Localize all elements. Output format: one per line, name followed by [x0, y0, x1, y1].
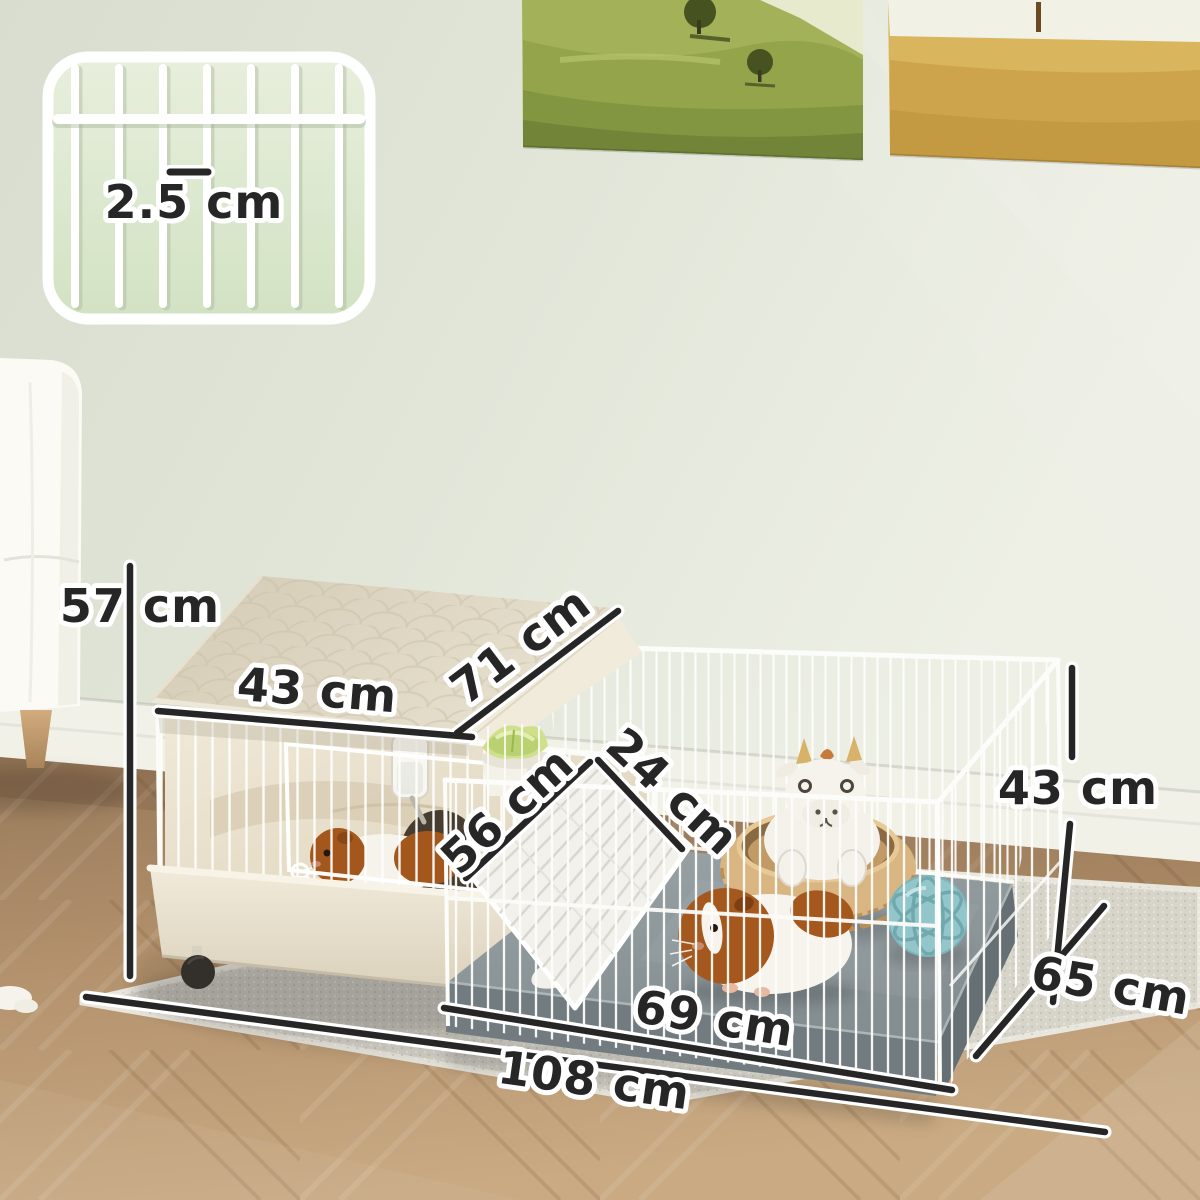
product-dimension-photo: 57 cm 43 cm 71 cm 56 cm 24 cm 43 cm 65 c… — [0, 0, 1200, 1200]
pen-height-label: 43 cm — [998, 761, 1158, 815]
bar-spacing-inset: 2.5 cm — [48, 57, 370, 319]
scene-illustration: 57 cm 43 cm 71 cm 56 cm 24 cm 43 cm 65 c… — [0, 0, 1200, 1200]
wall-art-right — [888, 0, 1200, 168]
overall-height-label: 57 cm — [60, 579, 220, 633]
painting-tree-trunk — [1036, 2, 1041, 32]
armchair — [0, 358, 82, 768]
bar-spacing-label: 2.5 cm — [105, 175, 284, 229]
wall-art-left — [522, 0, 863, 160]
